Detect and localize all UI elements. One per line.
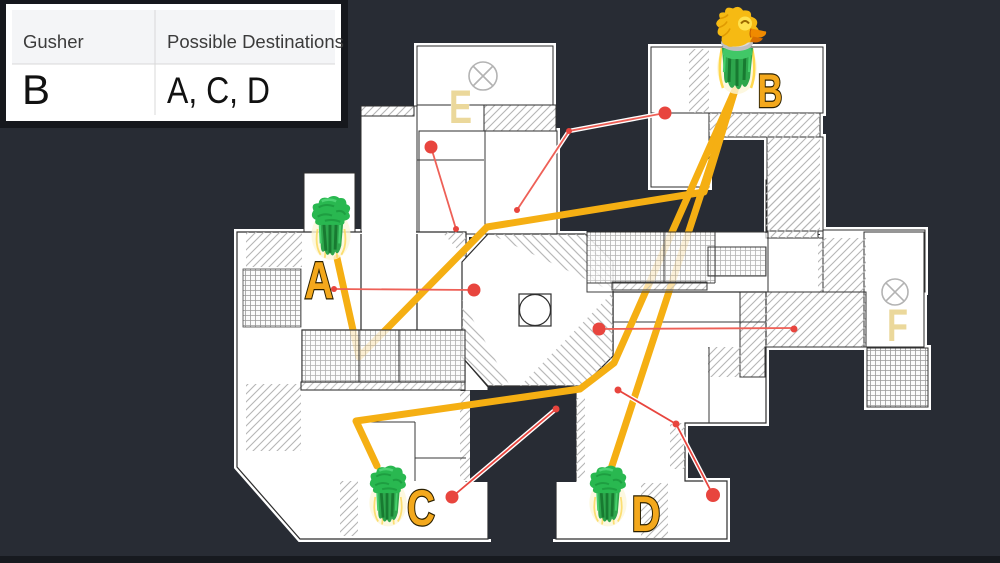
svg-text:B: B <box>22 66 50 113</box>
svg-text:F: F <box>887 300 908 351</box>
svg-text:A: A <box>305 252 334 310</box>
svg-text:A, C, D: A, C, D <box>167 70 270 111</box>
svg-text:E: E <box>449 80 472 133</box>
svg-text:Possible Destinations: Possible Destinations <box>167 31 344 52</box>
svg-text:C: C <box>407 480 435 536</box>
svg-text:B: B <box>758 64 783 117</box>
svg-text:Gusher: Gusher <box>23 31 84 52</box>
svg-text:D: D <box>632 486 661 542</box>
